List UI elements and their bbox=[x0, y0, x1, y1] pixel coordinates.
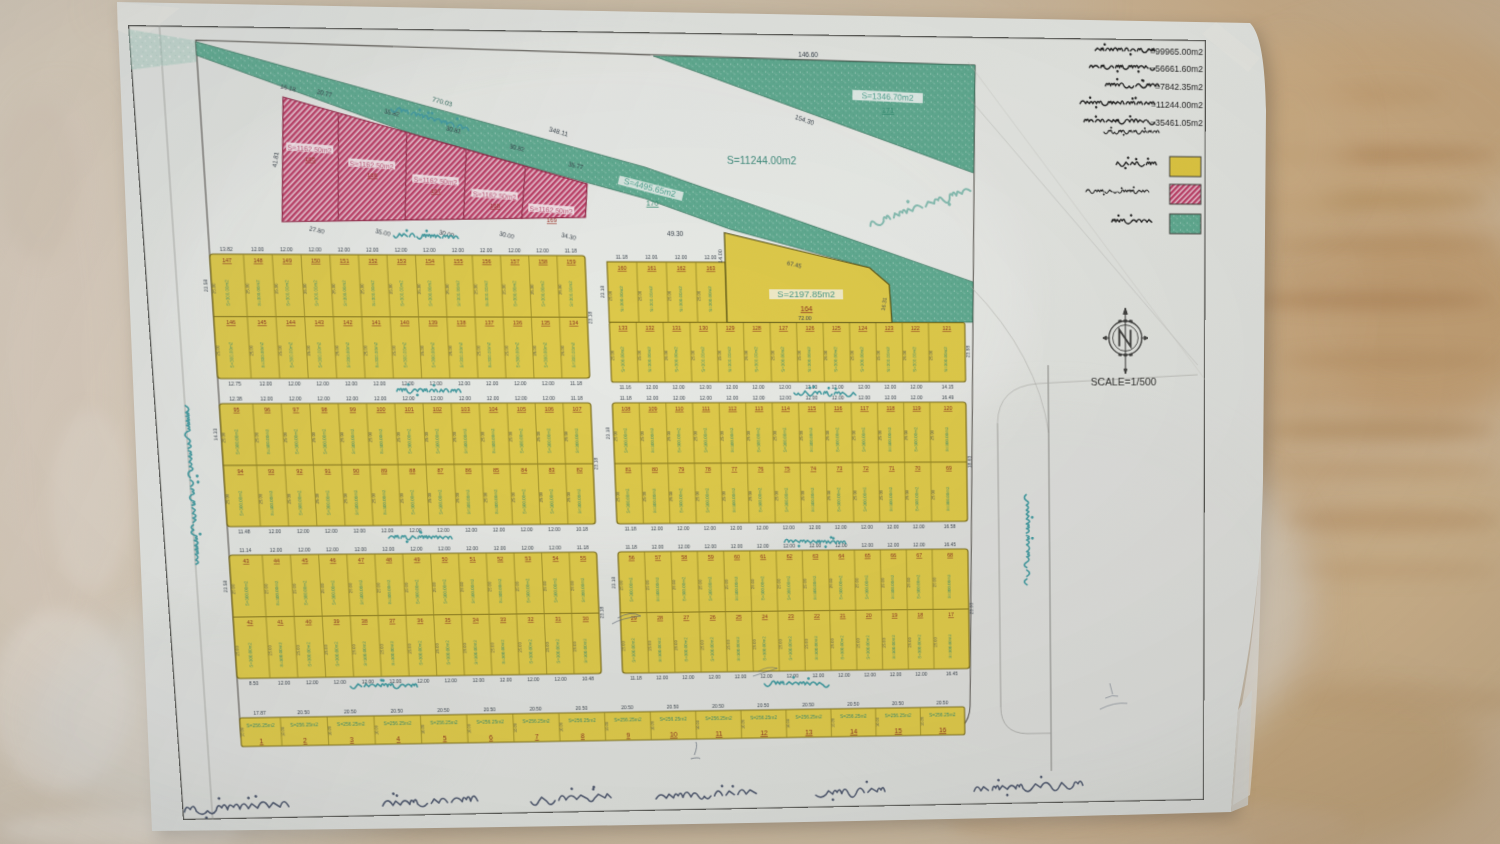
svg-text:25.00: 25.00 bbox=[225, 493, 230, 504]
svg-text:12.00: 12.00 bbox=[514, 382, 527, 388]
svg-text:98: 98 bbox=[321, 408, 327, 414]
svg-text:25.00: 25.00 bbox=[462, 643, 467, 654]
svg-text:107: 107 bbox=[573, 407, 582, 413]
svg-text:12.00: 12.00 bbox=[289, 397, 302, 403]
svg-text:25.00: 25.00 bbox=[231, 584, 236, 595]
svg-text:25.00: 25.00 bbox=[424, 431, 429, 442]
svg-text:25.00: 25.00 bbox=[774, 490, 779, 501]
svg-text:12.00: 12.00 bbox=[753, 396, 765, 402]
svg-text:139: 139 bbox=[428, 321, 437, 327]
svg-text:25.00: 25.00 bbox=[669, 491, 674, 502]
svg-text:S=256.25m2: S=256.25m2 bbox=[795, 715, 822, 721]
svg-text:S=300.00m2: S=300.00m2 bbox=[620, 346, 627, 372]
svg-text:12.00: 12.00 bbox=[451, 248, 464, 254]
svg-text:=11244.00m2: =11244.00m2 bbox=[1151, 100, 1203, 111]
svg-text:12.00: 12.00 bbox=[521, 528, 534, 534]
svg-text:10.00: 10.00 bbox=[875, 717, 880, 727]
svg-text:12.00: 12.00 bbox=[508, 248, 521, 254]
svg-text:25.00: 25.00 bbox=[264, 583, 269, 594]
svg-text:171: 171 bbox=[882, 106, 895, 115]
svg-text:25.00: 25.00 bbox=[249, 345, 254, 356]
svg-text:12.00: 12.00 bbox=[911, 396, 923, 402]
svg-text:8.50: 8.50 bbox=[249, 682, 259, 688]
svg-text:12.00: 12.00 bbox=[410, 547, 423, 553]
svg-text:25.00: 25.00 bbox=[902, 350, 907, 361]
svg-text:25.00: 25.00 bbox=[292, 583, 297, 594]
svg-text:25.00: 25.00 bbox=[752, 639, 757, 649]
svg-text:106: 106 bbox=[545, 407, 554, 413]
svg-text:11.18: 11.18 bbox=[577, 546, 589, 552]
svg-text:S=300.00m2: S=300.00m2 bbox=[810, 487, 816, 512]
svg-text:77: 77 bbox=[731, 467, 737, 473]
svg-text:S=300.00m2: S=300.00m2 bbox=[470, 579, 477, 604]
svg-text:25.00: 25.00 bbox=[610, 350, 615, 361]
svg-text:S=300.00m2: S=300.00m2 bbox=[676, 427, 682, 452]
svg-text:S=300.00m2: S=300.00m2 bbox=[788, 636, 794, 661]
svg-text:12.00: 12.00 bbox=[887, 525, 899, 531]
svg-text:31: 31 bbox=[555, 618, 561, 624]
svg-text:41.81: 41.81 bbox=[272, 151, 281, 168]
svg-text:20.50: 20.50 bbox=[483, 708, 495, 714]
svg-text:4: 4 bbox=[396, 735, 400, 743]
svg-text:133: 133 bbox=[618, 326, 627, 332]
svg-text:72: 72 bbox=[863, 466, 869, 472]
svg-text:96: 96 bbox=[264, 408, 271, 414]
svg-text:25.00: 25.00 bbox=[647, 640, 652, 650]
svg-text:25.00: 25.00 bbox=[619, 580, 624, 591]
svg-text:110: 110 bbox=[675, 407, 684, 413]
svg-text:25.00: 25.00 bbox=[721, 491, 726, 502]
svg-text:20.50: 20.50 bbox=[621, 705, 633, 711]
svg-text:11: 11 bbox=[715, 730, 722, 738]
svg-text:12.00: 12.00 bbox=[543, 396, 556, 402]
svg-text:118: 118 bbox=[886, 406, 894, 412]
svg-text:25.00: 25.00 bbox=[368, 431, 373, 442]
svg-text:8: 8 bbox=[581, 732, 585, 740]
svg-text:164: 164 bbox=[800, 305, 813, 313]
svg-text:13: 13 bbox=[805, 728, 813, 736]
svg-text:25.00: 25.00 bbox=[572, 641, 577, 652]
svg-text:142: 142 bbox=[343, 321, 353, 327]
svg-text:84: 84 bbox=[521, 468, 528, 474]
svg-text:25.00: 25.00 bbox=[432, 582, 437, 593]
svg-text:20.50: 20.50 bbox=[667, 705, 679, 711]
svg-text:25.00: 25.00 bbox=[476, 345, 481, 356]
svg-text:12.00: 12.00 bbox=[675, 255, 688, 261]
svg-text:119: 119 bbox=[913, 406, 921, 412]
svg-text:103: 103 bbox=[461, 407, 470, 413]
svg-text:25.00: 25.00 bbox=[608, 290, 613, 301]
svg-text:89: 89 bbox=[381, 469, 387, 475]
svg-text:62: 62 bbox=[786, 554, 792, 559]
svg-text:25.00: 25.00 bbox=[850, 350, 855, 361]
svg-text:12.00: 12.00 bbox=[366, 248, 379, 254]
svg-text:12.00: 12.00 bbox=[465, 528, 478, 534]
svg-text:S=300.00m2: S=300.00m2 bbox=[528, 639, 535, 664]
svg-text:87: 87 bbox=[437, 469, 443, 475]
svg-text:S=300.00m2: S=300.00m2 bbox=[580, 577, 587, 602]
svg-text:S=256.25m2: S=256.25m2 bbox=[750, 716, 777, 722]
svg-text:81: 81 bbox=[625, 468, 631, 474]
svg-text:25.00: 25.00 bbox=[933, 637, 938, 647]
svg-text:20.50: 20.50 bbox=[847, 702, 859, 707]
svg-text:40: 40 bbox=[305, 620, 311, 626]
svg-text:25.00: 25.00 bbox=[804, 638, 809, 648]
svg-text:167: 167 bbox=[431, 188, 442, 195]
svg-text:S=300.00m2: S=300.00m2 bbox=[861, 427, 867, 452]
svg-text:127: 127 bbox=[779, 327, 788, 333]
svg-text:12.00: 12.00 bbox=[861, 526, 873, 532]
svg-text:100: 100 bbox=[376, 407, 385, 413]
svg-text:S=300.00m2: S=300.00m2 bbox=[913, 427, 919, 452]
svg-text:143: 143 bbox=[315, 321, 325, 327]
svg-text:149: 149 bbox=[282, 259, 292, 265]
svg-text:12.00: 12.00 bbox=[645, 255, 658, 261]
svg-text:25.00: 25.00 bbox=[254, 432, 259, 443]
svg-text:25.00: 25.00 bbox=[672, 579, 677, 590]
svg-text:116: 116 bbox=[834, 406, 843, 412]
svg-text:10: 10 bbox=[670, 730, 678, 738]
svg-text:25.00: 25.00 bbox=[851, 430, 856, 441]
svg-text:12.00: 12.00 bbox=[458, 382, 471, 388]
svg-text:25.00: 25.00 bbox=[215, 345, 221, 356]
svg-text:12.00: 12.00 bbox=[260, 397, 273, 403]
svg-text:12.00: 12.00 bbox=[251, 247, 264, 253]
svg-text:25.00: 25.00 bbox=[830, 638, 835, 648]
svg-text:55: 55 bbox=[580, 556, 586, 562]
svg-text:11.14: 11.14 bbox=[239, 548, 252, 554]
svg-text:S=300.00m2: S=300.00m2 bbox=[493, 489, 500, 514]
svg-text:25.00: 25.00 bbox=[827, 490, 832, 501]
svg-text:25.00: 25.00 bbox=[448, 345, 453, 356]
svg-text:S=300.00m2: S=300.00m2 bbox=[629, 577, 635, 602]
svg-text:12.00: 12.00 bbox=[809, 544, 821, 550]
svg-text:25.00: 25.00 bbox=[348, 582, 353, 593]
svg-text:S=300.00m2: S=300.00m2 bbox=[762, 636, 768, 661]
svg-text:20.50: 20.50 bbox=[936, 701, 948, 706]
svg-text:42: 42 bbox=[247, 621, 253, 627]
svg-text:12.00: 12.00 bbox=[864, 673, 876, 678]
svg-text:12.00: 12.00 bbox=[309, 248, 322, 254]
svg-text:33: 33 bbox=[500, 618, 506, 624]
svg-text:12.00: 12.00 bbox=[756, 526, 768, 532]
svg-text:12.00: 12.00 bbox=[806, 396, 818, 402]
svg-text:12.00: 12.00 bbox=[700, 396, 712, 402]
svg-text:124: 124 bbox=[858, 327, 868, 333]
svg-text:11.18: 11.18 bbox=[625, 545, 637, 551]
svg-text:63: 63 bbox=[812, 554, 818, 559]
svg-text:2: 2 bbox=[303, 736, 307, 744]
svg-text:S=300.00m2: S=300.00m2 bbox=[647, 346, 653, 372]
svg-text:S=300.00m2: S=300.00m2 bbox=[484, 280, 491, 306]
svg-text:14.00: 14.00 bbox=[718, 249, 724, 263]
svg-text:7: 7 bbox=[535, 733, 539, 741]
svg-text:25.00: 25.00 bbox=[645, 580, 650, 591]
svg-text:126: 126 bbox=[805, 327, 814, 333]
svg-text:25.00: 25.00 bbox=[825, 430, 830, 441]
svg-text:108: 108 bbox=[621, 407, 630, 413]
svg-text:10.00: 10.00 bbox=[374, 725, 379, 735]
svg-text:25.00: 25.00 bbox=[879, 490, 884, 501]
svg-text:12.00: 12.00 bbox=[555, 678, 567, 684]
svg-text:74: 74 bbox=[810, 467, 817, 473]
svg-text:25.00: 25.00 bbox=[799, 430, 804, 441]
svg-text:25.00: 25.00 bbox=[931, 489, 936, 500]
svg-text:25.00: 25.00 bbox=[320, 583, 325, 594]
svg-text:12.00: 12.00 bbox=[779, 386, 791, 392]
svg-text:5: 5 bbox=[443, 734, 447, 742]
svg-text:S=300.00m2: S=300.00m2 bbox=[649, 286, 655, 312]
svg-text:132: 132 bbox=[645, 326, 654, 332]
svg-text:17.87: 17.87 bbox=[253, 711, 266, 717]
svg-text:S=256.25m2: S=256.25m2 bbox=[430, 720, 458, 726]
svg-text:25.00: 25.00 bbox=[532, 345, 537, 356]
svg-text:14.33: 14.33 bbox=[213, 428, 220, 441]
svg-text:S=300.00m2: S=300.00m2 bbox=[623, 428, 629, 453]
svg-text:148: 148 bbox=[253, 259, 263, 265]
svg-text:52: 52 bbox=[497, 557, 503, 563]
svg-text:12.00: 12.00 bbox=[515, 396, 528, 402]
svg-text:S=11244.00m2: S=11244.00m2 bbox=[727, 155, 797, 167]
svg-text:S=256.25m2: S=256.25m2 bbox=[660, 717, 687, 723]
svg-text:115: 115 bbox=[808, 407, 817, 413]
svg-text:101: 101 bbox=[405, 407, 414, 413]
svg-text:25.00: 25.00 bbox=[283, 432, 288, 443]
svg-text:113: 113 bbox=[755, 407, 764, 413]
svg-text:S=256.25m2: S=256.25m2 bbox=[568, 718, 596, 724]
svg-text:S=256.25m2: S=256.25m2 bbox=[383, 721, 411, 727]
svg-text:135: 135 bbox=[541, 321, 550, 327]
svg-text:S=300.00m2: S=300.00m2 bbox=[708, 576, 714, 601]
svg-text:23.58: 23.58 bbox=[223, 580, 229, 592]
svg-text:109: 109 bbox=[648, 407, 657, 413]
svg-text:128: 128 bbox=[752, 327, 761, 333]
svg-text:140: 140 bbox=[400, 321, 409, 327]
svg-text:48: 48 bbox=[386, 558, 392, 564]
svg-text:12.00: 12.00 bbox=[459, 396, 472, 402]
svg-text:12.00: 12.00 bbox=[779, 396, 791, 402]
svg-text:S=300.00m2: S=300.00m2 bbox=[838, 575, 844, 600]
svg-text:152: 152 bbox=[368, 259, 378, 265]
svg-text:16: 16 bbox=[939, 726, 946, 734]
svg-text:S=300.00m2: S=300.00m2 bbox=[705, 488, 711, 513]
svg-text:S=300.00m2: S=300.00m2 bbox=[568, 281, 575, 307]
svg-text:12.00: 12.00 bbox=[704, 527, 716, 533]
svg-text:156: 156 bbox=[482, 259, 491, 265]
svg-text:67: 67 bbox=[916, 553, 922, 558]
svg-text:6: 6 bbox=[489, 733, 493, 741]
svg-text:25.00: 25.00 bbox=[339, 432, 344, 443]
svg-text:150: 150 bbox=[311, 259, 321, 265]
svg-text:12.00: 12.00 bbox=[269, 530, 282, 536]
svg-text:12.00: 12.00 bbox=[317, 397, 330, 403]
svg-text:90: 90 bbox=[353, 469, 359, 475]
svg-text:25.00: 25.00 bbox=[717, 350, 722, 361]
svg-text:69: 69 bbox=[946, 466, 952, 471]
svg-text:153: 153 bbox=[397, 259, 407, 265]
svg-text:770.03: 770.03 bbox=[432, 96, 453, 108]
svg-text:25.00: 25.00 bbox=[907, 637, 912, 647]
svg-text:145: 145 bbox=[257, 321, 267, 327]
svg-text:10.00: 10.00 bbox=[920, 716, 925, 726]
svg-text:30: 30 bbox=[583, 617, 589, 622]
svg-text:147: 147 bbox=[222, 258, 232, 264]
svg-text:25.00: 25.00 bbox=[726, 639, 731, 649]
svg-text:161: 161 bbox=[647, 266, 656, 272]
svg-text:25.00: 25.00 bbox=[690, 350, 695, 361]
svg-text:47: 47 bbox=[358, 558, 364, 564]
svg-text:125: 125 bbox=[832, 327, 841, 333]
svg-text:117: 117 bbox=[860, 406, 869, 412]
svg-text:12.00: 12.00 bbox=[735, 675, 747, 681]
svg-text:34.30: 34.30 bbox=[561, 232, 577, 242]
svg-text:12.00: 12.00 bbox=[337, 248, 350, 254]
svg-text:S=300.00m2: S=300.00m2 bbox=[553, 578, 560, 603]
svg-text:12.00: 12.00 bbox=[673, 396, 685, 402]
svg-text:20.50: 20.50 bbox=[757, 703, 769, 709]
svg-text:S=300.00m2: S=300.00m2 bbox=[890, 575, 896, 600]
svg-text:S=300.00m2: S=300.00m2 bbox=[945, 427, 951, 452]
svg-text:25.00: 25.00 bbox=[427, 492, 432, 503]
svg-text:25.00: 25.00 bbox=[391, 345, 396, 356]
svg-text:25.00: 25.00 bbox=[302, 283, 307, 294]
svg-text:27: 27 bbox=[683, 616, 689, 621]
svg-text:25.00: 25.00 bbox=[744, 350, 749, 361]
svg-text:=35461.05m2: =35461.05m2 bbox=[1150, 118, 1203, 129]
svg-text:25.00: 25.00 bbox=[566, 491, 571, 502]
svg-text:104: 104 bbox=[489, 407, 499, 413]
svg-text:23.18: 23.18 bbox=[594, 458, 600, 470]
svg-text:12.00: 12.00 bbox=[672, 386, 684, 392]
svg-text:S=300.00m2: S=300.00m2 bbox=[840, 635, 846, 660]
svg-text:23.58: 23.58 bbox=[203, 279, 210, 292]
svg-text:49.30: 49.30 bbox=[667, 231, 683, 238]
svg-text:78: 78 bbox=[705, 467, 711, 473]
svg-text:12.00: 12.00 bbox=[354, 547, 367, 553]
svg-text:12.00: 12.00 bbox=[297, 530, 310, 536]
svg-text:S=300.00m2: S=300.00m2 bbox=[681, 576, 687, 601]
svg-text:25.00: 25.00 bbox=[778, 639, 783, 649]
svg-text:144: 144 bbox=[286, 321, 296, 327]
svg-text:49: 49 bbox=[414, 558, 420, 564]
svg-text:16.45: 16.45 bbox=[944, 543, 956, 548]
svg-text:12.00: 12.00 bbox=[910, 385, 922, 391]
svg-text:12.00: 12.00 bbox=[536, 249, 549, 255]
svg-text:25.00: 25.00 bbox=[530, 284, 535, 295]
svg-text:S=256.25m2: S=256.25m2 bbox=[476, 720, 504, 726]
svg-text:114: 114 bbox=[781, 407, 790, 413]
svg-text:10.00: 10.00 bbox=[604, 721, 609, 731]
svg-text:25.00: 25.00 bbox=[905, 490, 910, 501]
svg-text:20.50: 20.50 bbox=[297, 710, 310, 716]
svg-text:25.00: 25.00 bbox=[473, 283, 478, 294]
svg-text:12.00: 12.00 bbox=[430, 396, 443, 402]
svg-text:12.00: 12.00 bbox=[752, 386, 764, 392]
svg-text:25.00: 25.00 bbox=[642, 491, 647, 502]
svg-text:25.00: 25.00 bbox=[613, 431, 618, 442]
svg-text:S=300.00m2: S=300.00m2 bbox=[891, 635, 897, 659]
svg-text:S=300.00m2: S=300.00m2 bbox=[619, 286, 626, 312]
svg-text:S=256.25m2: S=256.25m2 bbox=[246, 723, 274, 729]
svg-text:S=256.25m2: S=256.25m2 bbox=[290, 723, 318, 729]
svg-text:25.00: 25.00 bbox=[666, 431, 671, 442]
svg-text:20.50: 20.50 bbox=[437, 708, 449, 714]
svg-text:25.00: 25.00 bbox=[667, 290, 672, 301]
svg-text:11.16: 11.16 bbox=[619, 386, 631, 392]
svg-text:20.50: 20.50 bbox=[892, 701, 904, 706]
svg-text:25.00: 25.00 bbox=[932, 577, 937, 587]
svg-text:25.00: 25.00 bbox=[545, 642, 550, 653]
svg-text:12.00: 12.00 bbox=[858, 396, 870, 402]
svg-text:146: 146 bbox=[226, 321, 236, 327]
svg-text:25.00: 25.00 bbox=[306, 345, 311, 356]
svg-text:S=300.00m2: S=300.00m2 bbox=[886, 347, 892, 372]
svg-text:12.00: 12.00 bbox=[832, 396, 844, 402]
svg-text:S=300.00m2: S=300.00m2 bbox=[497, 578, 504, 603]
svg-text:S=300.00m2: S=300.00m2 bbox=[512, 280, 519, 306]
svg-text:57: 57 bbox=[655, 556, 661, 562]
svg-text:163: 163 bbox=[706, 266, 715, 272]
svg-text:10.00: 10.00 bbox=[786, 718, 791, 728]
svg-text:12.00: 12.00 bbox=[438, 547, 451, 553]
svg-text:25.00: 25.00 bbox=[878, 430, 883, 441]
svg-text:25.00: 25.00 bbox=[296, 645, 301, 656]
svg-text:25.00: 25.00 bbox=[539, 492, 544, 503]
svg-text:S=300.00m2: S=300.00m2 bbox=[812, 575, 818, 600]
svg-text:S=300.00m2: S=300.00m2 bbox=[708, 286, 714, 312]
svg-text:10.00: 10.00 bbox=[650, 720, 655, 730]
svg-text:11.18: 11.18 bbox=[620, 396, 632, 402]
svg-text:16.49: 16.49 bbox=[942, 396, 954, 402]
svg-text:14.15: 14.15 bbox=[942, 385, 954, 391]
svg-text:25.00: 25.00 bbox=[483, 492, 488, 503]
svg-text:S=300.00m2: S=300.00m2 bbox=[731, 488, 737, 513]
svg-text:S=256.25m2: S=256.25m2 bbox=[705, 716, 732, 722]
svg-text:S=300.00m2: S=300.00m2 bbox=[917, 634, 923, 658]
svg-text:20.50: 20.50 bbox=[802, 703, 814, 708]
svg-text:25.00: 25.00 bbox=[343, 493, 348, 504]
svg-text:12.00: 12.00 bbox=[298, 548, 311, 554]
svg-text:73: 73 bbox=[837, 467, 843, 473]
svg-text:12.00: 12.00 bbox=[805, 386, 817, 392]
svg-text:12.00: 12.00 bbox=[838, 674, 850, 679]
svg-text:25.00: 25.00 bbox=[637, 350, 642, 361]
svg-text:25.00: 25.00 bbox=[776, 578, 781, 589]
svg-text:16.45: 16.45 bbox=[946, 672, 958, 677]
svg-text:348.11: 348.11 bbox=[548, 127, 569, 139]
svg-text:12.00: 12.00 bbox=[809, 526, 821, 532]
svg-text:25.00: 25.00 bbox=[459, 581, 464, 592]
svg-text:25.00: 25.00 bbox=[504, 345, 509, 356]
svg-text:S=300.00m2: S=300.00m2 bbox=[583, 638, 589, 663]
svg-text:12.00: 12.00 bbox=[527, 678, 539, 684]
svg-text:S=256.25m2: S=256.25m2 bbox=[337, 722, 365, 728]
svg-text:S=300.00m2: S=300.00m2 bbox=[734, 576, 740, 601]
svg-text:S=300.00m2: S=300.00m2 bbox=[866, 635, 872, 659]
svg-text:10.00: 10.00 bbox=[467, 723, 472, 733]
svg-text:25.00: 25.00 bbox=[930, 430, 935, 441]
svg-text:S=300.00m2: S=300.00m2 bbox=[655, 577, 661, 602]
svg-text:12.00: 12.00 bbox=[445, 679, 458, 685]
svg-text:12.00: 12.00 bbox=[270, 548, 283, 554]
svg-text:S=300.00m2: S=300.00m2 bbox=[703, 427, 709, 452]
svg-text:39: 39 bbox=[333, 620, 339, 626]
svg-text:60: 60 bbox=[734, 555, 740, 560]
svg-text:37: 37 bbox=[389, 619, 395, 625]
svg-text:25.00: 25.00 bbox=[797, 350, 802, 361]
svg-text:25.00: 25.00 bbox=[277, 345, 282, 356]
svg-text:12.00: 12.00 bbox=[487, 396, 500, 402]
